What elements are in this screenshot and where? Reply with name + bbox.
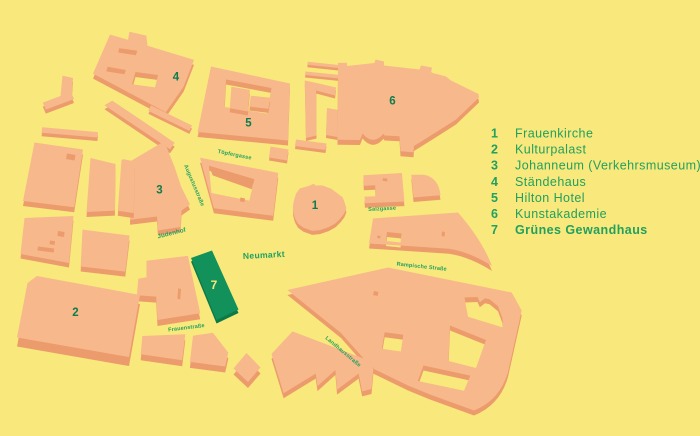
svg-text:7: 7 — [211, 278, 218, 292]
svg-text:1: 1 — [491, 127, 498, 141]
svg-text:5: 5 — [491, 191, 498, 205]
svg-text:Kulturpalast: Kulturpalast — [515, 143, 586, 157]
svg-text:Johanneum (Verkehrsmuseum): Johanneum (Verkehrsmuseum) — [515, 159, 700, 173]
svg-text:2: 2 — [72, 307, 78, 319]
svg-text:7: 7 — [491, 223, 498, 237]
svg-text:3: 3 — [491, 159, 498, 173]
svg-text:5: 5 — [245, 118, 252, 130]
svg-text:Ständehaus: Ständehaus — [515, 175, 586, 189]
svg-text:Grünes Gewandhaus: Grünes Gewandhaus — [515, 223, 648, 237]
svg-text:2: 2 — [491, 143, 498, 157]
svg-text:6: 6 — [491, 207, 498, 221]
svg-text:Frauenkirche: Frauenkirche — [515, 127, 593, 141]
svg-text:Hilton Hotel: Hilton Hotel — [515, 191, 585, 205]
svg-text:3: 3 — [156, 185, 162, 197]
svg-text:6: 6 — [389, 96, 395, 108]
svg-text:Kunstakademie: Kunstakademie — [515, 207, 607, 221]
svg-text:4: 4 — [491, 175, 498, 189]
svg-text:4: 4 — [173, 72, 180, 84]
svg-text:1: 1 — [312, 200, 319, 212]
